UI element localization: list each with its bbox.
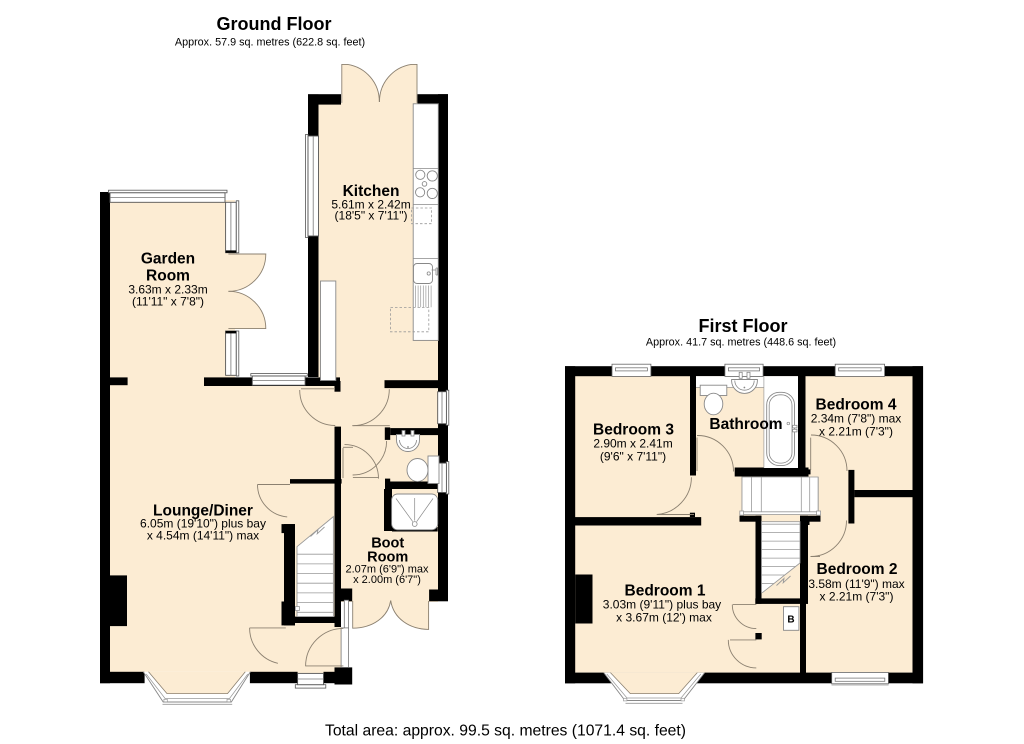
svg-text:2.90m x 2.41m: 2.90m x 2.41m [593,437,672,451]
svg-text:Ground Floor: Ground Floor [217,14,332,34]
svg-text:Approx. 41.7 sq. metres (448.6: Approx. 41.7 sq. metres (448.6 sq. feet) [646,337,836,349]
svg-text:First Floor: First Floor [699,316,788,336]
svg-text:Approx. 57.9 sq. metres (622.8: Approx. 57.9 sq. metres (622.8 sq. feet) [175,37,365,49]
svg-text:x 2.21m (7'3"): x 2.21m (7'3") [819,425,893,439]
svg-text:x 3.67m (12') max: x 3.67m (12') max [616,611,712,625]
svg-text:Bathroom: Bathroom [709,416,782,433]
svg-text:Garden: Garden [141,251,195,268]
svg-text:2.34m (7'8") max: 2.34m (7'8") max [811,412,902,426]
svg-text:(18'5" x 7'11"): (18'5" x 7'11") [335,209,408,223]
svg-text:(9'6" x 7'11"): (9'6" x 7'11") [600,450,666,464]
svg-text:(11'11" x 7'8"): (11'11" x 7'8") [132,295,204,309]
svg-text:Bedroom 2: Bedroom 2 [817,561,898,578]
svg-text:x 2.21m (7'3"): x 2.21m (7'3") [820,590,894,604]
svg-text:x 4.54m (14'11") max: x 4.54m (14'11") max [147,529,259,543]
svg-text:Total area: approx. 99.5 sq. m: Total area: approx. 99.5 sq. metres (107… [325,723,686,740]
svg-text:3.03m (9'11") plus bay: 3.03m (9'11") plus bay [603,598,721,612]
svg-text:x 2.00m (6'7"): x 2.00m (6'7") [353,574,421,586]
svg-text:B: B [787,615,794,626]
